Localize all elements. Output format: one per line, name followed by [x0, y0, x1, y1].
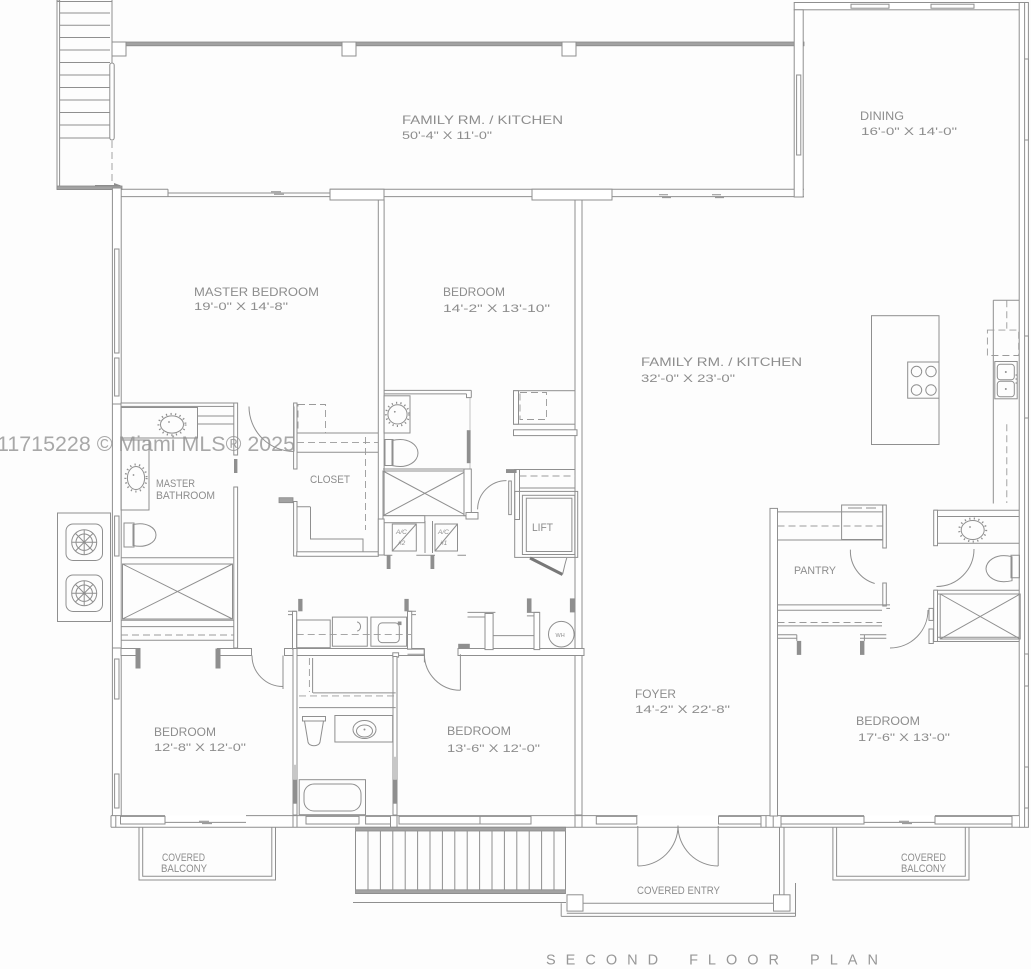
- svg-text:BATHROOM: BATHROOM: [156, 490, 215, 502]
- svg-text:13'-6" X 12'-0": 13'-6" X 12'-0": [447, 743, 540, 755]
- svg-text:#1: #1: [440, 540, 448, 547]
- svg-text:DINING: DINING: [860, 109, 904, 123]
- svg-text:16'-0" X 14'-0": 16'-0" X 14'-0": [861, 126, 957, 138]
- svg-text:14'-2" X 13'-10": 14'-2" X 13'-10": [443, 303, 550, 315]
- svg-text:LIFT: LIFT: [532, 522, 553, 534]
- svg-text:BEDROOM: BEDROOM: [443, 285, 505, 299]
- svg-text:BEDROOM: BEDROOM: [856, 714, 920, 728]
- svg-text:MASTER BEDROOM: MASTER BEDROOM: [194, 285, 319, 299]
- svg-text:WH: WH: [556, 633, 565, 639]
- svg-text:A/C: A/C: [437, 529, 449, 536]
- svg-text:PANTRY: PANTRY: [794, 565, 836, 577]
- svg-text:BEDROOM: BEDROOM: [447, 724, 511, 738]
- svg-text:MASTER: MASTER: [156, 478, 195, 490]
- svg-text:BALCONY: BALCONY: [901, 863, 946, 875]
- svg-text:CLOSET: CLOSET: [310, 474, 350, 486]
- svg-text:17'-6" X 13'-0": 17'-6" X 13'-0": [858, 732, 950, 744]
- svg-text:FOYER: FOYER: [635, 687, 676, 701]
- svg-text:COVERED ENTRY: COVERED ENTRY: [637, 885, 720, 897]
- svg-text:11715228 © Miami MLS® 2025: 11715228 © Miami MLS® 2025: [0, 433, 295, 456]
- svg-text:12'-8" X 12'-0": 12'-8" X 12'-0": [154, 742, 246, 754]
- svg-text:BALCONY: BALCONY: [161, 863, 207, 875]
- svg-text:14'-2" X 22'-8": 14'-2" X 22'-8": [635, 704, 730, 716]
- svg-text:FAMILY RM. / KITCHEN: FAMILY RM. / KITCHEN: [402, 113, 563, 127]
- svg-text:19'-0" X 14'-8": 19'-0" X 14'-8": [194, 301, 288, 313]
- svg-text:50'-4" X 11'-0": 50'-4" X 11'-0": [402, 130, 492, 142]
- svg-text:#2: #2: [398, 540, 406, 547]
- svg-text:A/C: A/C: [395, 529, 407, 536]
- svg-text:FAMILY RM. / KITCHEN: FAMILY RM. / KITCHEN: [641, 355, 802, 369]
- svg-text:SECOND FLOOR PLAN: SECOND FLOOR PLAN: [546, 953, 888, 969]
- svg-text:32'-0" X 23'-0": 32'-0" X 23'-0": [641, 373, 735, 385]
- svg-text:BEDROOM: BEDROOM: [154, 725, 216, 739]
